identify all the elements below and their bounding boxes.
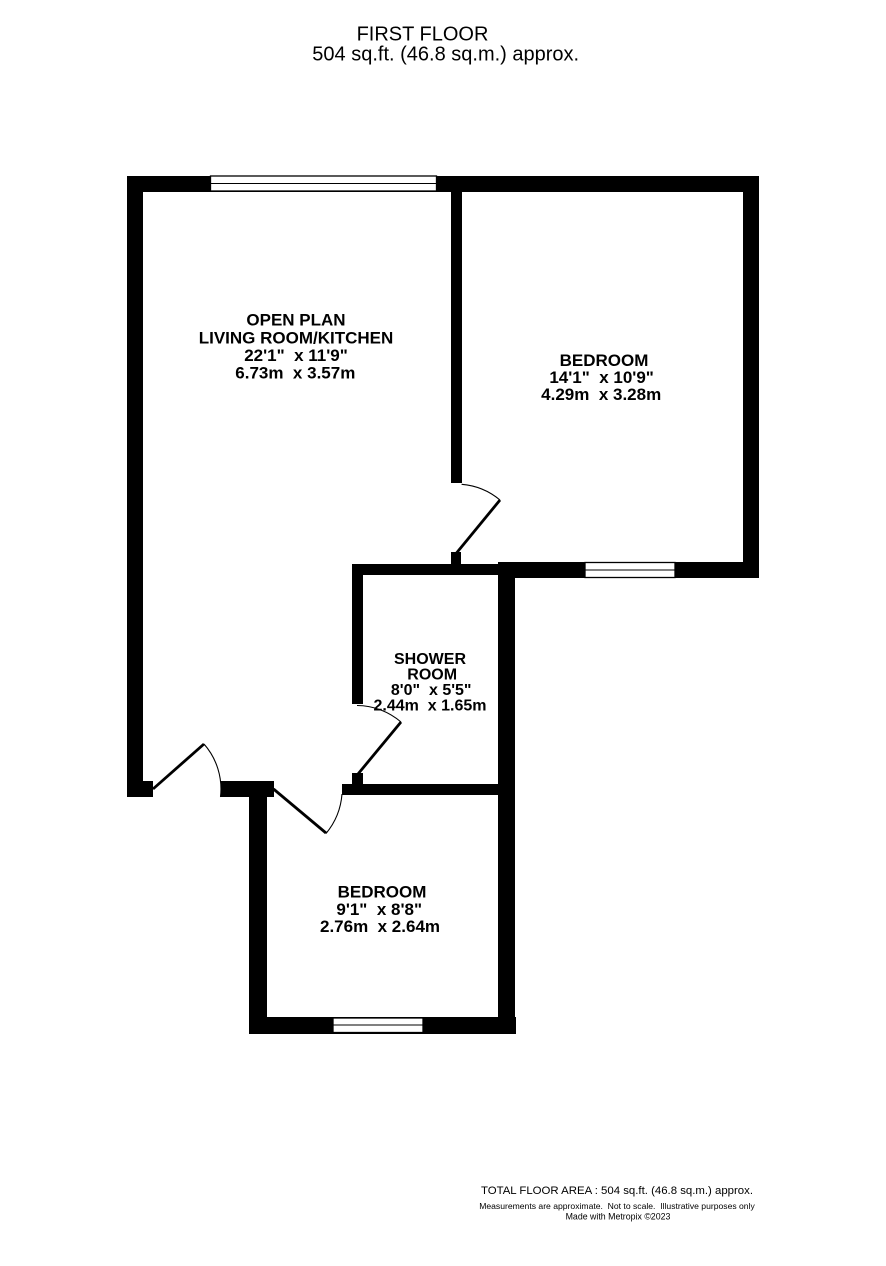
- svg-text:6.73m x 3.57m: 6.73m x 3.57m: [235, 364, 355, 383]
- svg-text:22'1" x 11'9": 22'1" x 11'9": [244, 346, 348, 365]
- svg-text:2.44m x 1.65m: 2.44m x 1.65m: [374, 697, 487, 714]
- svg-text:BEDROOM: BEDROOM: [560, 351, 649, 370]
- svg-text:BEDROOM: BEDROOM: [338, 883, 427, 902]
- svg-text:ROOM: ROOM: [407, 667, 457, 684]
- svg-text:2.76m x 2.64m: 2.76m x 2.64m: [320, 917, 440, 936]
- svg-text:TOTAL FLOOR AREA : 504 sq.ft.: TOTAL FLOOR AREA : 504 sq.ft. (46.8 sq.m…: [481, 1185, 753, 1197]
- svg-text:OPEN PLAN: OPEN PLAN: [246, 311, 345, 330]
- svg-text:LIVING ROOM/KITCHEN: LIVING ROOM/KITCHEN: [199, 328, 394, 347]
- svg-text:FIRST FLOOR: FIRST FLOOR: [357, 24, 489, 46]
- svg-text:504 sq.ft. (46.8 sq.m.) approx: 504 sq.ft. (46.8 sq.m.) approx.: [312, 44, 579, 66]
- svg-text:4.29m x 3.28m: 4.29m x 3.28m: [541, 385, 661, 404]
- svg-text:Measurements are approximate.: Measurements are approximate. Not to sca…: [479, 1201, 755, 1211]
- svg-text:Made with Metropix ©2023: Made with Metropix ©2023: [566, 1211, 671, 1221]
